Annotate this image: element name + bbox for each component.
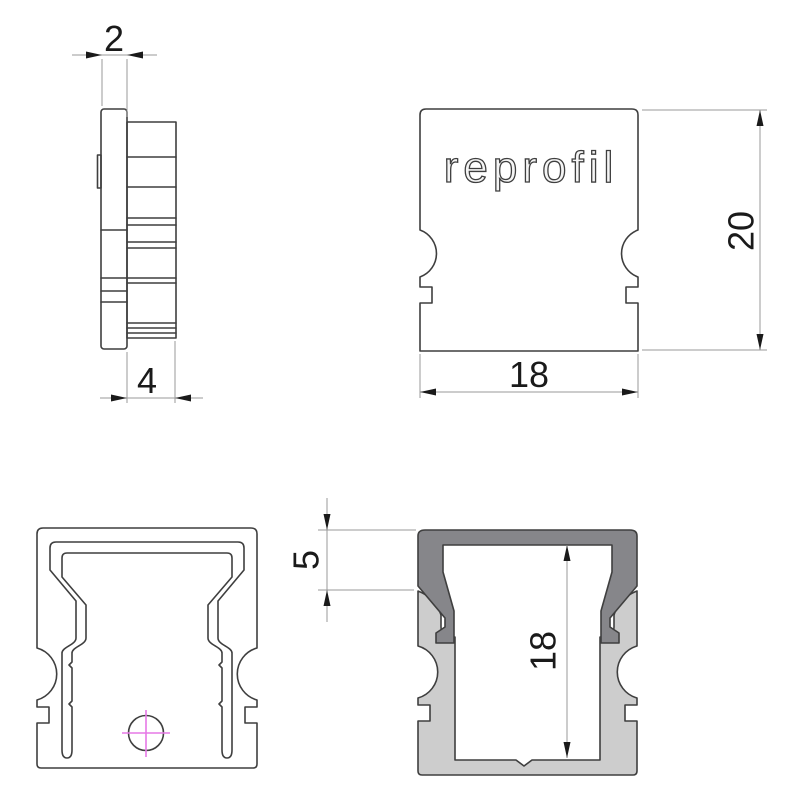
dim-profile-width: 18 xyxy=(420,354,638,398)
side-view: 2 4 xyxy=(72,18,203,403)
dim-label-collar-height: 5 xyxy=(286,550,327,570)
end-cap-section xyxy=(418,530,637,643)
plate-division-lines xyxy=(101,230,127,302)
dim-label-profile-width: 18 xyxy=(509,354,549,395)
center-mark xyxy=(122,710,170,757)
cap-face-view xyxy=(37,528,257,768)
dim-cap-depth: 4 xyxy=(100,341,203,403)
dim-cap-thickness: 2 xyxy=(72,18,157,117)
section-view: 5 18 xyxy=(286,498,637,775)
cap-face-plate-side xyxy=(101,109,127,349)
cap-face-outline xyxy=(37,528,257,768)
cap-body-side xyxy=(127,122,176,338)
dim-label-cap-thickness: 2 xyxy=(104,18,124,59)
drawing-sheet: 2 4 reprofil 18 xyxy=(0,0,800,800)
front-view: reprofil 18 20 xyxy=(420,109,767,398)
body-rib-lines xyxy=(127,157,176,333)
dim-label-profile-height: 20 xyxy=(721,211,762,251)
cap-side-tab xyxy=(98,155,102,188)
dim-label-cap-depth: 4 xyxy=(137,360,157,401)
dim-inner-height: 18 xyxy=(523,545,571,758)
brand-logo: reprofil xyxy=(444,143,619,192)
cap-inner-rib-contour xyxy=(50,542,244,758)
dim-label-inner-height: 18 xyxy=(523,631,564,671)
dim-collar-height: 5 xyxy=(286,498,416,622)
technical-drawing-canvas: 2 4 reprofil 18 xyxy=(0,0,800,800)
dim-profile-height: 20 xyxy=(642,110,767,350)
